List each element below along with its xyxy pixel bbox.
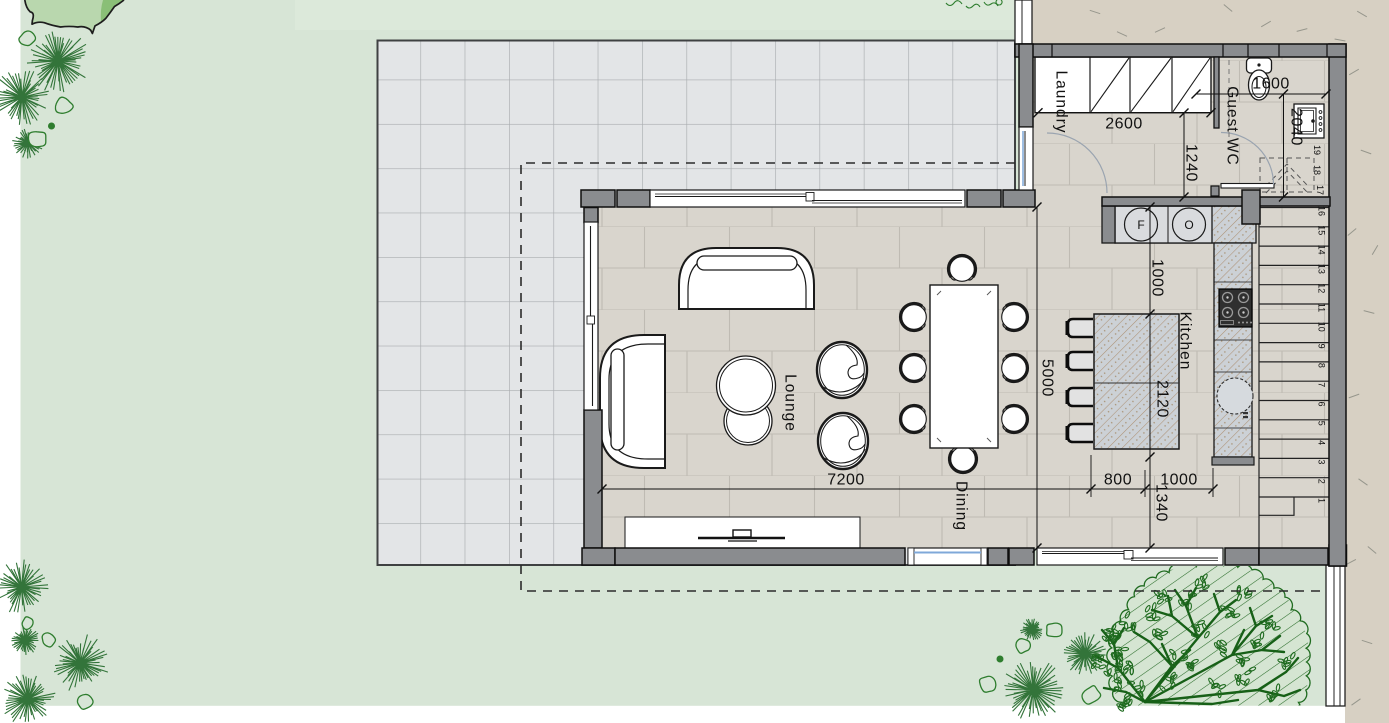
svg-text:10: 10 (1317, 322, 1327, 332)
svg-text:17: 17 (1315, 185, 1325, 195)
svg-text:2040: 2040 (1288, 108, 1305, 146)
svg-text:Dining: Dining (953, 481, 970, 531)
svg-text:7200: 7200 (827, 472, 865, 489)
svg-text:2120: 2120 (1154, 380, 1171, 418)
svg-text:14: 14 (1317, 245, 1327, 255)
svg-text:13: 13 (1317, 264, 1327, 274)
svg-text:1000: 1000 (1149, 259, 1166, 297)
svg-text:1: 1 (1317, 498, 1327, 503)
svg-text:3: 3 (1317, 459, 1327, 464)
svg-text:1600: 1600 (1252, 76, 1290, 93)
svg-text:2: 2 (1317, 479, 1327, 484)
svg-text:2600: 2600 (1105, 116, 1143, 133)
svg-text:F: F (1137, 218, 1144, 232)
svg-text:5: 5 (1317, 421, 1327, 426)
svg-text:1340: 1340 (1153, 484, 1170, 522)
svg-text:800: 800 (1104, 472, 1132, 489)
svg-text:7: 7 (1317, 382, 1327, 387)
svg-text:8: 8 (1317, 363, 1327, 368)
svg-text:Lounge: Lounge (782, 374, 799, 432)
svg-text:1240: 1240 (1183, 144, 1200, 182)
svg-text:Kitchen: Kitchen (1177, 312, 1194, 371)
svg-text:Guest WC: Guest WC (1224, 86, 1241, 165)
svg-text:12: 12 (1317, 283, 1327, 293)
svg-text:9: 9 (1317, 344, 1327, 349)
svg-text:Laundry: Laundry (1053, 70, 1070, 133)
svg-text:5000: 5000 (1039, 359, 1056, 397)
svg-text:16: 16 (1317, 206, 1327, 216)
svg-text:15: 15 (1317, 225, 1327, 235)
svg-text:11: 11 (1317, 303, 1327, 312)
svg-text:6: 6 (1317, 401, 1327, 406)
svg-text:O: O (1184, 218, 1193, 232)
svg-text:19: 19 (1312, 145, 1322, 155)
svg-text:4: 4 (1317, 440, 1327, 445)
